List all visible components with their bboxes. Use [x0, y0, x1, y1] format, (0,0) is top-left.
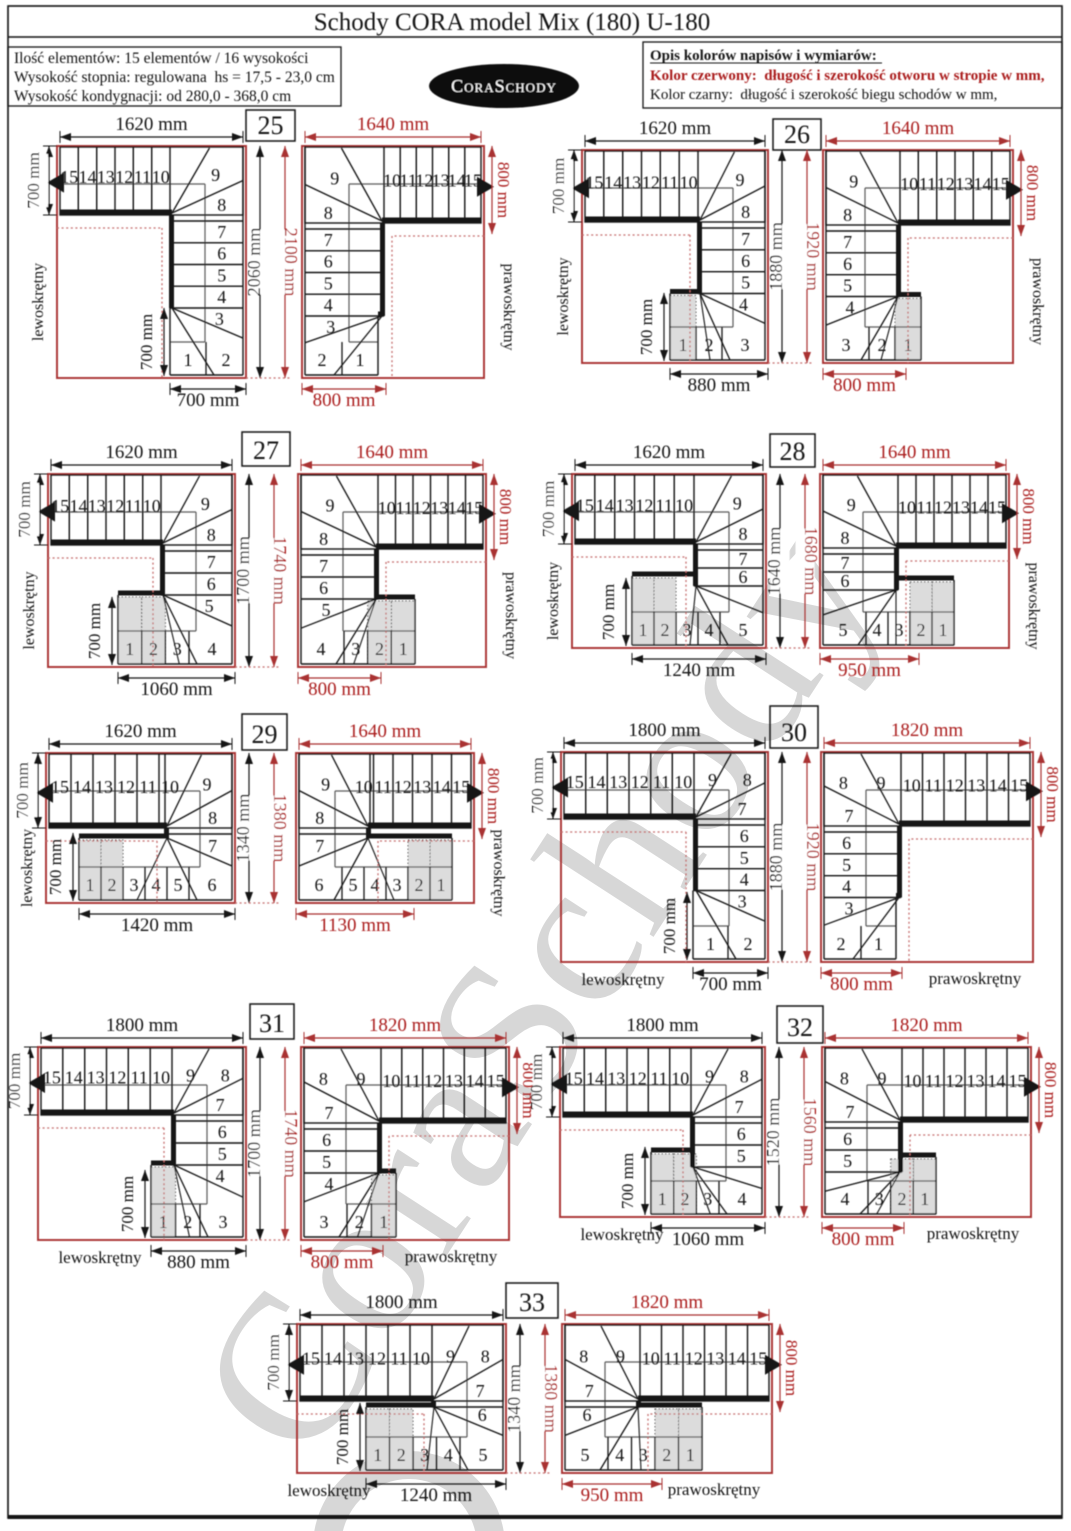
svg-text:1420 mm: 1420 mm — [121, 915, 194, 936]
svg-text:4: 4 — [740, 870, 749, 890]
svg-text:4: 4 — [873, 620, 882, 640]
svg-text:prawoskrętny: prawoskrętny — [502, 572, 519, 659]
svg-text:10: 10 — [675, 496, 693, 516]
svg-text:1: 1 — [399, 639, 408, 659]
svg-text:700 mm: 700 mm — [46, 839, 65, 895]
svg-text:2: 2 — [744, 934, 753, 954]
svg-text:13: 13 — [967, 775, 985, 795]
svg-text:12: 12 — [108, 1068, 126, 1088]
svg-text:13: 13 — [346, 1349, 364, 1369]
svg-text:11: 11 — [375, 777, 392, 797]
svg-text:4: 4 — [739, 295, 748, 315]
svg-text:1620 mm: 1620 mm — [105, 442, 178, 463]
svg-text:9: 9 — [736, 170, 745, 190]
svg-text:Kolor czarny: długość i szero: Kolor czarny: długość i szerokość biegu … — [650, 87, 997, 103]
svg-text:10: 10 — [143, 496, 161, 516]
svg-text:3: 3 — [326, 317, 335, 337]
svg-text:14: 14 — [728, 1349, 746, 1369]
svg-text:1340 mm: 1340 mm — [504, 1364, 524, 1433]
svg-text:30: 30 — [781, 718, 807, 747]
svg-text:10: 10 — [904, 1071, 922, 1091]
svg-text:3: 3 — [738, 892, 747, 912]
svg-text:1820 mm: 1820 mm — [890, 1015, 963, 1036]
svg-text:11: 11 — [131, 1068, 148, 1088]
svg-text:7: 7 — [325, 1103, 334, 1123]
svg-text:12: 12 — [685, 1349, 703, 1369]
svg-text:lewoskrętny: lewoskrętny — [545, 562, 562, 640]
svg-text:8: 8 — [319, 529, 328, 549]
svg-text:2: 2 — [222, 350, 231, 370]
svg-text:2: 2 — [662, 1445, 671, 1465]
svg-text:8: 8 — [740, 1066, 749, 1086]
svg-text:3: 3 — [639, 1445, 648, 1465]
svg-text:14: 14 — [466, 1071, 484, 1091]
svg-text:8: 8 — [743, 770, 752, 790]
svg-text:1620 mm: 1620 mm — [639, 118, 712, 139]
svg-text:5: 5 — [479, 1445, 488, 1465]
svg-text:13: 13 — [955, 174, 973, 194]
svg-text:700 mm: 700 mm — [177, 390, 240, 411]
svg-text:6: 6 — [740, 826, 749, 846]
svg-text:12: 12 — [642, 172, 660, 192]
svg-text:1: 1 — [437, 875, 446, 895]
svg-text:15: 15 — [1009, 1071, 1027, 1091]
svg-text:6: 6 — [217, 244, 226, 264]
svg-text:13: 13 — [706, 1349, 724, 1369]
svg-text:700 mm: 700 mm — [699, 974, 762, 995]
svg-text:700 mm: 700 mm — [527, 1054, 546, 1110]
svg-text:2: 2 — [415, 875, 424, 895]
svg-text:1700 mm: 1700 mm — [244, 1109, 264, 1178]
svg-text:700 mm: 700 mm — [264, 1334, 283, 1390]
svg-text:prawoskrętny: prawoskrętny — [490, 829, 507, 916]
svg-text:8: 8 — [840, 1069, 849, 1089]
svg-text:8: 8 — [839, 773, 848, 793]
svg-text:880 mm: 880 mm — [688, 375, 751, 396]
svg-text:9: 9 — [733, 493, 742, 513]
svg-text:15: 15 — [565, 1069, 583, 1089]
svg-text:3: 3 — [173, 639, 182, 659]
svg-text:14: 14 — [448, 171, 466, 191]
svg-text:2: 2 — [661, 620, 670, 640]
svg-text:8: 8 — [481, 1346, 490, 1366]
svg-text:12: 12 — [946, 775, 964, 795]
svg-text:800 mm: 800 mm — [1019, 488, 1038, 544]
svg-text:9: 9 — [326, 496, 335, 516]
svg-text:11: 11 — [650, 1069, 667, 1089]
svg-text:8: 8 — [217, 195, 226, 215]
svg-text:7: 7 — [319, 556, 328, 576]
svg-text:3: 3 — [875, 1189, 884, 1209]
svg-text:12: 12 — [106, 496, 124, 516]
svg-text:800 mm: 800 mm — [830, 974, 893, 995]
svg-text:11: 11 — [404, 1071, 421, 1091]
svg-text:700 mm: 700 mm — [24, 152, 43, 208]
svg-text:13: 13 — [445, 1071, 463, 1091]
svg-text:14: 14 — [970, 497, 988, 517]
svg-text:13: 13 — [967, 1071, 985, 1091]
svg-text:lewoskrętny: lewoskrętny — [19, 829, 36, 907]
svg-text:1920 mm: 1920 mm — [803, 823, 823, 892]
svg-text:8: 8 — [741, 202, 750, 222]
svg-text:880 mm: 880 mm — [167, 1252, 230, 1273]
svg-text:8: 8 — [208, 808, 217, 828]
svg-text:4: 4 — [842, 877, 851, 897]
svg-text:5: 5 — [349, 875, 358, 895]
svg-text:14: 14 — [70, 496, 88, 516]
svg-text:800 mm: 800 mm — [833, 375, 896, 396]
svg-text:1640 mm: 1640 mm — [764, 527, 784, 596]
svg-text:1820 mm: 1820 mm — [891, 720, 964, 741]
svg-text:27: 27 — [253, 436, 279, 465]
svg-text:2: 2 — [108, 875, 117, 895]
svg-text:1640 mm: 1640 mm — [356, 442, 429, 463]
svg-text:14: 14 — [988, 1071, 1006, 1091]
svg-text:3: 3 — [130, 875, 139, 895]
svg-text:4: 4 — [152, 875, 161, 895]
svg-text:5: 5 — [839, 620, 848, 640]
svg-text:11: 11 — [134, 167, 151, 187]
svg-text:2: 2 — [917, 620, 926, 640]
svg-text:1: 1 — [920, 1189, 929, 1209]
svg-text:1820 mm: 1820 mm — [369, 1015, 442, 1036]
svg-text:1340 mm: 1340 mm — [233, 794, 253, 863]
svg-text:7: 7 — [315, 836, 324, 856]
svg-text:15: 15 — [302, 1349, 320, 1369]
svg-text:800 mm: 800 mm — [1043, 766, 1062, 822]
svg-text:800 mm: 800 mm — [1023, 165, 1042, 221]
svg-text:7: 7 — [843, 232, 852, 252]
svg-text:2: 2 — [397, 1445, 406, 1465]
svg-text:2: 2 — [375, 639, 384, 659]
svg-text:1640 mm: 1640 mm — [882, 118, 955, 139]
svg-text:700 mm: 700 mm — [528, 757, 547, 813]
svg-text:1880 mm: 1880 mm — [766, 823, 786, 892]
svg-text:4: 4 — [738, 1189, 747, 1209]
svg-text:14: 14 — [974, 174, 992, 194]
svg-text:10: 10 — [383, 171, 401, 191]
svg-text:28: 28 — [780, 437, 806, 466]
svg-text:7: 7 — [216, 1095, 225, 1115]
svg-text:14: 14 — [448, 498, 466, 518]
svg-text:prawoskrętny: prawoskrętny — [929, 969, 1022, 988]
svg-text:800 mm: 800 mm — [496, 489, 515, 545]
svg-text:950 mm: 950 mm — [581, 1485, 644, 1506]
svg-text:1240 mm: 1240 mm — [400, 1485, 473, 1506]
svg-text:3: 3 — [845, 899, 854, 919]
svg-text:1: 1 — [379, 1212, 388, 1232]
svg-text:5: 5 — [740, 848, 749, 868]
svg-text:1: 1 — [658, 1189, 667, 1209]
svg-text:lewoskrętny: lewoskrętny — [555, 257, 572, 335]
svg-text:prawoskrętny: prawoskrętny — [500, 263, 517, 350]
svg-text:700 mm: 700 mm — [118, 1176, 137, 1232]
svg-text:3: 3 — [420, 1445, 429, 1465]
svg-text:6: 6 — [583, 1405, 592, 1425]
svg-text:2: 2 — [681, 1189, 690, 1209]
svg-text:prawoskrętny: prawoskrętny — [405, 1247, 498, 1266]
svg-text:6: 6 — [208, 875, 217, 895]
svg-text:15: 15 — [749, 1349, 767, 1369]
svg-text:1: 1 — [939, 620, 948, 640]
svg-text:3: 3 — [741, 335, 750, 355]
svg-text:14: 14 — [433, 777, 451, 797]
svg-text:1240 mm: 1240 mm — [663, 660, 736, 681]
svg-text:8: 8 — [843, 205, 852, 225]
svg-text:14: 14 — [586, 1069, 604, 1089]
svg-text:9: 9 — [211, 165, 220, 185]
svg-text:7: 7 — [735, 1097, 744, 1117]
svg-text:11: 11 — [664, 1349, 681, 1369]
svg-text:Schody CORA model Mix (180) U-: Schody CORA model Mix (180) U-180 — [314, 9, 711, 36]
svg-text:5: 5 — [322, 1152, 331, 1172]
svg-text:2: 2 — [355, 1212, 364, 1232]
svg-text:12: 12 — [394, 777, 412, 797]
svg-text:5: 5 — [842, 855, 851, 875]
svg-text:11: 11 — [139, 777, 156, 797]
svg-text:2: 2 — [705, 335, 714, 355]
svg-text:6: 6 — [315, 875, 324, 895]
svg-text:12: 12 — [635, 496, 653, 516]
svg-text:3: 3 — [683, 620, 692, 640]
svg-text:8: 8 — [324, 203, 333, 223]
svg-text:700 mm: 700 mm — [618, 1153, 637, 1209]
svg-text:15: 15 — [487, 1071, 505, 1091]
svg-text:3: 3 — [895, 620, 904, 640]
svg-text:4: 4 — [208, 639, 217, 659]
svg-text:3: 3 — [393, 875, 402, 895]
svg-text:6: 6 — [322, 1130, 331, 1150]
svg-text:12: 12 — [117, 777, 135, 797]
svg-text:1620 mm: 1620 mm — [104, 721, 177, 742]
svg-text:800 mm: 800 mm — [484, 768, 503, 824]
svg-text:1640 mm: 1640 mm — [878, 442, 951, 463]
svg-text:Opis kolorów napisów i wymiaró: Opis kolorów napisów i wymiarów: — [650, 48, 877, 64]
svg-text:Wysokość stopnia: regulowana: Wysokość stopnia: regulowana hs = 17,5 -… — [14, 69, 335, 86]
svg-text:7: 7 — [585, 1381, 594, 1401]
svg-text:9: 9 — [201, 494, 210, 514]
svg-text:4: 4 — [841, 1189, 850, 1209]
svg-text:8: 8 — [315, 808, 324, 828]
svg-text:1920 mm: 1920 mm — [803, 222, 823, 291]
svg-text:13: 13 — [623, 172, 641, 192]
svg-text:8: 8 — [207, 525, 216, 545]
svg-text:1: 1 — [184, 350, 193, 370]
svg-text:4: 4 — [324, 295, 333, 315]
svg-text:7: 7 — [324, 230, 333, 250]
svg-text:5: 5 — [737, 1146, 746, 1166]
svg-text:8: 8 — [579, 1346, 588, 1366]
svg-text:12: 12 — [415, 171, 433, 191]
svg-text:4: 4 — [846, 298, 855, 318]
svg-text:7: 7 — [846, 1102, 855, 1122]
svg-text:4: 4 — [444, 1445, 453, 1465]
svg-text:CoraSchody: CoraSchody — [451, 76, 557, 96]
svg-text:2: 2 — [183, 1212, 192, 1232]
svg-text:700 mm: 700 mm — [5, 1053, 24, 1109]
svg-text:13: 13 — [952, 497, 970, 517]
svg-text:1800 mm: 1800 mm — [365, 1292, 438, 1313]
svg-text:5: 5 — [843, 276, 852, 296]
svg-text:700 mm: 700 mm — [539, 481, 558, 537]
svg-text:6: 6 — [741, 251, 750, 271]
svg-text:14: 14 — [989, 775, 1007, 795]
svg-text:950 mm: 950 mm — [838, 660, 901, 681]
svg-text:1680 mm: 1680 mm — [801, 527, 821, 596]
svg-text:prawoskrętny: prawoskrętny — [668, 1480, 761, 1499]
svg-text:prawoskrętny: prawoskrętny — [1029, 258, 1046, 345]
svg-text:6: 6 — [218, 1122, 227, 1142]
svg-text:4: 4 — [705, 620, 714, 640]
svg-text:800 mm: 800 mm — [311, 1252, 374, 1273]
svg-text:13: 13 — [87, 1068, 105, 1088]
svg-text:700 mm: 700 mm — [85, 603, 104, 659]
svg-text:13: 13 — [97, 167, 115, 187]
svg-text:11: 11 — [925, 1071, 942, 1091]
svg-text:6: 6 — [843, 254, 852, 274]
svg-text:5: 5 — [581, 1445, 590, 1465]
svg-text:3: 3 — [703, 1189, 712, 1209]
svg-text:12: 12 — [631, 772, 649, 792]
svg-text:800 mm: 800 mm — [494, 162, 513, 218]
svg-text:11: 11 — [919, 174, 936, 194]
svg-text:7: 7 — [738, 799, 747, 819]
svg-text:12: 12 — [413, 498, 431, 518]
svg-text:800 mm: 800 mm — [313, 390, 376, 411]
svg-text:6: 6 — [324, 252, 333, 272]
svg-text:12: 12 — [937, 174, 955, 194]
svg-text:1800 mm: 1800 mm — [626, 1015, 699, 1036]
svg-text:1060 mm: 1060 mm — [140, 679, 213, 700]
svg-text:13: 13 — [432, 171, 450, 191]
svg-text:1800 mm: 1800 mm — [628, 720, 701, 741]
svg-text:2100 mm: 2100 mm — [281, 228, 301, 297]
svg-text:10: 10 — [680, 172, 698, 192]
svg-text:6: 6 — [207, 574, 216, 594]
svg-text:10: 10 — [642, 1349, 660, 1369]
svg-text:800 mm: 800 mm — [782, 1340, 801, 1396]
svg-text:1640 mm: 1640 mm — [357, 114, 430, 135]
svg-text:prawoskrętny: prawoskrętny — [927, 1224, 1020, 1243]
svg-text:11: 11 — [125, 496, 142, 516]
svg-text:14: 14 — [588, 772, 606, 792]
svg-text:3: 3 — [351, 639, 360, 659]
svg-text:8: 8 — [319, 1069, 328, 1089]
svg-text:10: 10 — [903, 775, 921, 795]
svg-text:10: 10 — [378, 498, 396, 518]
svg-text:13: 13 — [430, 498, 448, 518]
svg-text:11: 11 — [396, 498, 413, 518]
svg-text:10: 10 — [412, 1349, 430, 1369]
svg-text:7: 7 — [207, 552, 216, 572]
svg-text:1620 mm: 1620 mm — [115, 114, 188, 135]
svg-text:1: 1 — [86, 875, 95, 895]
svg-text:5: 5 — [205, 596, 214, 616]
svg-text:7: 7 — [208, 836, 217, 856]
svg-text:10: 10 — [671, 1069, 689, 1089]
svg-text:6: 6 — [478, 1405, 487, 1425]
svg-text:4: 4 — [615, 1445, 624, 1465]
svg-text:2060 mm: 2060 mm — [244, 228, 264, 297]
svg-text:14: 14 — [596, 496, 614, 516]
svg-text:9: 9 — [849, 172, 858, 192]
svg-text:800 mm: 800 mm — [832, 1229, 895, 1250]
svg-text:15: 15 — [51, 777, 69, 797]
svg-text:1: 1 — [639, 620, 648, 640]
svg-text:5: 5 — [739, 620, 748, 640]
svg-text:12: 12 — [424, 1071, 442, 1091]
svg-text:11: 11 — [653, 772, 670, 792]
svg-text:lewoskrętny: lewoskrętny — [30, 263, 47, 341]
svg-text:700 mm: 700 mm — [549, 158, 568, 214]
svg-text:700 mm: 700 mm — [660, 898, 679, 954]
svg-text:1: 1 — [686, 1445, 695, 1465]
svg-text:700 mm: 700 mm — [13, 762, 32, 818]
svg-text:12: 12 — [934, 497, 952, 517]
svg-text:32: 32 — [787, 1013, 813, 1042]
svg-text:2: 2 — [837, 934, 846, 954]
svg-text:6: 6 — [737, 1124, 746, 1144]
svg-text:10: 10 — [674, 772, 692, 792]
svg-text:13: 13 — [616, 496, 634, 516]
svg-text:6: 6 — [739, 567, 748, 587]
svg-text:3: 3 — [219, 1212, 228, 1232]
svg-text:700 mm: 700 mm — [599, 584, 618, 640]
svg-text:prawoskrętny: prawoskrętny — [1025, 562, 1042, 649]
svg-text:1640 mm: 1640 mm — [349, 721, 422, 742]
svg-text:1620 mm: 1620 mm — [633, 442, 706, 463]
svg-text:1700 mm: 1700 mm — [233, 536, 253, 605]
svg-text:7: 7 — [845, 806, 854, 826]
svg-text:lewoskrętny: lewoskrętny — [21, 571, 38, 649]
svg-text:lewoskrętny: lewoskrętny — [58, 1248, 142, 1267]
svg-text:7: 7 — [741, 229, 750, 249]
svg-text:1: 1 — [706, 934, 715, 954]
svg-text:26: 26 — [784, 120, 810, 149]
svg-text:4: 4 — [216, 1166, 225, 1186]
svg-text:13: 13 — [607, 1069, 625, 1089]
svg-text:5: 5 — [322, 600, 331, 620]
svg-text:1520 mm: 1520 mm — [763, 1098, 783, 1167]
svg-text:10: 10 — [382, 1071, 400, 1091]
svg-text:3: 3 — [320, 1212, 329, 1232]
svg-text:14: 14 — [65, 1068, 83, 1088]
svg-text:1: 1 — [874, 934, 883, 954]
svg-text:10: 10 — [152, 1068, 170, 1088]
svg-text:31: 31 — [259, 1009, 285, 1038]
svg-text:11: 11 — [661, 172, 678, 192]
svg-text:1740 mm: 1740 mm — [281, 1109, 301, 1178]
svg-text:9: 9 — [203, 775, 212, 795]
svg-text:8: 8 — [841, 528, 850, 548]
svg-text:13: 13 — [95, 777, 113, 797]
svg-text:4: 4 — [217, 287, 226, 307]
svg-text:700 mm: 700 mm — [137, 314, 156, 370]
svg-text:lewoskrętny: lewoskrętny — [581, 970, 665, 989]
svg-text:1: 1 — [356, 350, 365, 370]
svg-text:8: 8 — [739, 524, 748, 544]
svg-text:Wysokość kondygnacji: od 280,0: Wysokość kondygnacji: od 280,0 - 368,0 c… — [14, 88, 291, 105]
svg-text:14: 14 — [324, 1349, 342, 1369]
svg-text:700 mm: 700 mm — [333, 1409, 352, 1465]
svg-text:Ilość elementów: 15 elementów: Ilość elementów: 15 elementów / 16 wysok… — [14, 50, 309, 67]
svg-text:12: 12 — [115, 167, 133, 187]
svg-text:9: 9 — [847, 495, 856, 515]
svg-text:1060 mm: 1060 mm — [672, 1229, 745, 1250]
svg-text:1: 1 — [125, 639, 134, 659]
svg-text:7: 7 — [476, 1381, 485, 1401]
svg-text:5: 5 — [174, 875, 183, 895]
